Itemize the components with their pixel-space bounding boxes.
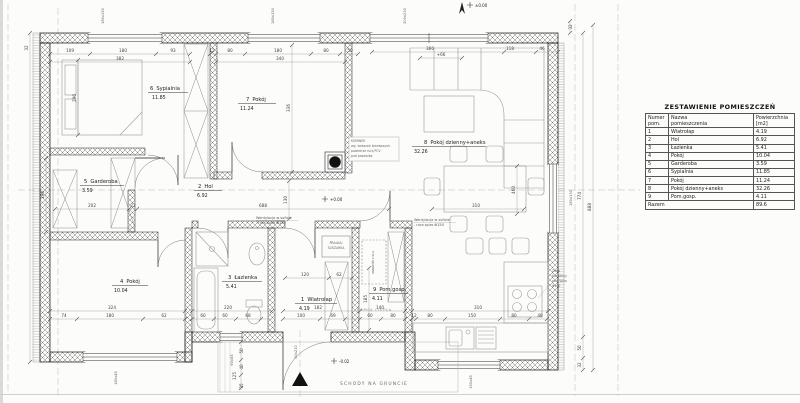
svg-text:- rura spiro Φ150: - rura spiro Φ150 xyxy=(414,223,444,227)
dim-label: 60 xyxy=(367,313,373,318)
shower xyxy=(196,232,228,266)
table-row: 7Pokój11.24 xyxy=(646,177,795,185)
entrance-door xyxy=(283,342,331,390)
col-header-name: Nazwapomieszczenia xyxy=(669,114,754,128)
dim-label: 290 xyxy=(72,94,77,102)
window-size-label: 300x230 xyxy=(403,7,407,24)
dim-label: 125 xyxy=(232,372,237,380)
svg-text:4.11: 4.11 xyxy=(372,296,383,302)
dim-label: 336 xyxy=(286,104,291,112)
dim-label: 310 xyxy=(474,305,482,310)
table-row: 1Wiatrołap4.19 xyxy=(646,128,795,136)
dim-label: 220 xyxy=(224,305,232,310)
col-header-number: Numerpom. xyxy=(646,114,669,128)
window xyxy=(370,33,488,43)
window xyxy=(220,332,242,342)
svg-text:wg. wskazań branżowych: wg. wskazań branżowych xyxy=(351,144,390,148)
table-row: 4Pokój10.04 xyxy=(646,152,795,160)
dim-label: 74 xyxy=(61,313,67,318)
exterior-walls xyxy=(40,33,558,370)
level-marker-porch: -0.02 xyxy=(331,358,350,364)
window-size-label: 180x150 xyxy=(101,7,105,24)
dim-label: 12 xyxy=(209,48,215,53)
dim-label: 50 xyxy=(239,348,244,354)
axis-lines xyxy=(8,4,640,398)
ventilation-note: Wentylacja w suficie - rura spiro Φ150 xyxy=(256,216,298,225)
dimension-lines xyxy=(30,21,593,390)
windows xyxy=(83,33,558,370)
dim-label: 35 xyxy=(239,383,244,389)
table-row: 3Łazienka5.41 xyxy=(646,144,795,152)
dim-label: 120 xyxy=(301,272,309,277)
dim-label: 22 xyxy=(130,203,136,208)
svg-text:3.59: 3.59 xyxy=(82,188,93,194)
door xyxy=(135,158,165,188)
col-header-area: Powierzchnia[m2] xyxy=(754,114,795,128)
bathtub xyxy=(194,268,218,332)
insulation-band xyxy=(33,33,564,370)
room-label-hol: 2Hol 6.92 xyxy=(194,184,222,199)
table-row: 6Sypialnia11.85 xyxy=(646,168,795,176)
door-size-label: 90x210 xyxy=(294,345,298,359)
svg-text:pod posadzką: pod posadzką xyxy=(351,154,373,158)
svg-text:4.19: 4.19 xyxy=(299,306,310,312)
svg-text:32.26: 32.26 xyxy=(414,149,428,155)
room-label-pokoj7: 7Pokój 11.24 xyxy=(238,96,276,112)
table-row: 8Pokój dzienny+aneks32.26 xyxy=(646,185,795,193)
window-size-label: 150x45 xyxy=(469,375,473,389)
window xyxy=(548,164,558,233)
level-marker-hol: +0.00 xyxy=(322,196,343,202)
dim-label: 196 xyxy=(40,191,45,199)
table-row: 2Hol6.92 xyxy=(646,136,795,144)
dim-label: 93 xyxy=(170,48,176,53)
entrance-marker xyxy=(292,372,308,386)
dim-label: 48 xyxy=(537,313,543,318)
svg-text:5.41: 5.41 xyxy=(226,284,237,290)
dimension-ticks xyxy=(28,19,595,390)
svg-text:5Garderoba: 5Garderoba xyxy=(84,179,118,185)
dim-label: 100 xyxy=(297,313,305,318)
dim-label: 80 xyxy=(511,313,517,318)
svg-text:- rura spiro Φ150: - rura spiro Φ150 xyxy=(256,221,286,225)
svg-text:±0.00: ±0.00 xyxy=(475,3,488,8)
table-row: 9Pom.gosp.4.11 xyxy=(646,193,795,201)
dim-label: 40 xyxy=(239,364,244,370)
door xyxy=(232,142,262,172)
svg-text:8Pokój dzienny+aneks: 8Pokój dzienny+aneks xyxy=(424,139,486,146)
window xyxy=(83,352,177,362)
dim-label: 185 xyxy=(363,295,368,303)
stairs-label: SCHODY NA GRUNCIE xyxy=(340,381,408,387)
coffee-table xyxy=(424,96,474,132)
svg-text:KOMINEK: KOMINEK xyxy=(351,139,366,143)
svg-text:Wentylacja w suficie: Wentylacja w suficie xyxy=(256,216,292,220)
dim-label: 774 xyxy=(577,192,582,200)
interior-walls xyxy=(50,43,412,362)
dim-label: 32 xyxy=(577,362,582,368)
dimension-labels: 109 180 93 382 12 80 180 80 50 340 360 +… xyxy=(24,24,592,389)
room-label-sypialnia: 6Sypialnia 11.85 xyxy=(148,86,188,101)
dim-label: 80 xyxy=(323,48,329,53)
dim-label: 180 xyxy=(106,313,114,318)
schedule-header-row: Numerpom. Nazwapomieszczenia Powierzchni… xyxy=(646,114,795,128)
window-size-label: 180x45 xyxy=(114,371,118,385)
north-arrow-icon xyxy=(459,2,465,14)
door xyxy=(148,155,178,185)
dim-label: 324 xyxy=(108,305,116,310)
dim-label: 60 xyxy=(222,313,228,318)
door xyxy=(158,240,185,267)
dim-label: 688 xyxy=(259,203,267,208)
svg-text:9Pom.gosp.: 9Pom.gosp. xyxy=(373,287,407,293)
svg-text:3Łazienka: 3Łazienka xyxy=(228,275,257,281)
svg-text:powietrze rurą PCV: powietrze rurą PCV xyxy=(351,149,382,153)
door xyxy=(198,228,228,258)
dim-label: 109 xyxy=(66,48,74,53)
window xyxy=(248,33,320,43)
level-marker-top: ±0.00 xyxy=(467,2,488,8)
dim-label: 180 xyxy=(274,48,282,53)
dim-label: 50 xyxy=(347,48,353,53)
dim-label: 382 xyxy=(116,56,124,61)
washer-label: PRALKA/ xyxy=(330,241,344,245)
dim-label: 50 xyxy=(577,345,582,351)
dim-label: +66 xyxy=(437,52,446,57)
svg-text:11.85: 11.85 xyxy=(152,95,166,101)
door xyxy=(360,191,390,221)
svg-text:rura spiro: rura spiro xyxy=(552,279,567,283)
corner-sofa xyxy=(410,48,544,188)
fireplace xyxy=(325,152,345,172)
svg-text:Wentylacja w suficie: Wentylacja w suficie xyxy=(414,218,450,222)
dim-label: 80 xyxy=(390,313,396,318)
svg-text:Φ150: Φ150 xyxy=(552,284,560,288)
table-total-row: Razem89.6 xyxy=(646,201,795,209)
dim-label: 62 xyxy=(336,272,342,277)
washbasin xyxy=(249,243,265,265)
svg-text:2Hol: 2Hol xyxy=(198,184,213,190)
dim-label: 888 xyxy=(587,203,592,211)
scanned-floor-plan-page: 109 180 93 382 12 80 180 80 50 340 360 +… xyxy=(0,0,800,403)
svg-text:-0.02: -0.02 xyxy=(339,359,350,364)
dim-label: 80 xyxy=(227,48,233,53)
drainer xyxy=(476,327,496,349)
dim-label: 46 xyxy=(539,46,545,51)
dim-label: 68 xyxy=(245,313,251,318)
window-size-label: 60x45 xyxy=(230,354,234,365)
table-row: 5Garderoba3.59 xyxy=(646,160,795,168)
door xyxy=(285,228,315,258)
dim-label: 12 xyxy=(411,313,417,318)
room-label-garderoba: 5Garderoba 3.59 xyxy=(80,179,124,194)
svg-text:kuchenny: kuchenny xyxy=(552,274,567,278)
svg-text:4Pokój: 4Pokój xyxy=(120,278,140,285)
svg-text:6.92: 6.92 xyxy=(197,193,208,199)
dim-label: 80 xyxy=(427,313,433,318)
bar-stools xyxy=(466,238,529,254)
dim-label: 340 xyxy=(276,56,284,61)
dim-label: 182 xyxy=(314,305,322,310)
window-size-label: 180x130 xyxy=(569,189,573,206)
sink xyxy=(446,327,474,349)
window xyxy=(438,360,500,370)
dim-label: 32 xyxy=(568,24,573,30)
svg-text:+0.00: +0.00 xyxy=(330,197,343,202)
window-size-label: 180x150 xyxy=(271,7,275,24)
dim-label: 60 xyxy=(200,313,206,318)
washer-label: SUSZARKA xyxy=(328,246,346,250)
svg-text:10.04: 10.04 xyxy=(114,288,128,294)
dim-label: 202 xyxy=(88,203,96,208)
room-label-pokoj4: 4Pokój 10.04 xyxy=(112,278,148,294)
svg-text:11.24: 11.24 xyxy=(240,106,254,112)
room-schedule-table: Numerpom. Nazwapomieszczenia Powierzchni… xyxy=(645,113,795,210)
dim-label: 150 xyxy=(468,313,476,318)
dim-label: 32 xyxy=(24,45,29,51)
room-label-pokoj-dzienny: 8Pokój dzienny+aneks 32.26 xyxy=(412,139,486,155)
heat-pump-label: POMPA CIEPŁA xyxy=(357,307,392,312)
schedule-title: ZESTAWIENIE POMIESZCZEŃ xyxy=(645,103,795,111)
svg-text:Okap: Okap xyxy=(552,269,560,273)
dim-label: 360 xyxy=(426,46,434,51)
water-heater-label: zasobnik c.w.u. xyxy=(371,250,375,273)
dim-label: 118 xyxy=(506,46,514,51)
dim-label: 62 xyxy=(161,313,167,318)
window xyxy=(88,33,162,43)
room-schedule: ZESTAWIENIE POMIESZCZEŃ Numerpom. Nazwap… xyxy=(645,103,795,210)
svg-text:6Sypialnia: 6Sypialnia xyxy=(150,86,180,92)
room-label-lazienka: 3Łazienka 5.41 xyxy=(222,275,262,290)
dim-label: 180 xyxy=(119,48,127,53)
svg-text:1Wiatrołap: 1Wiatrołap xyxy=(301,297,333,303)
dim-label: 130 xyxy=(283,196,288,204)
svg-text:7Pokój: 7Pokój xyxy=(246,96,266,103)
dim-label: 310 xyxy=(472,203,480,208)
dim-label: 69 xyxy=(330,313,336,318)
dim-label: 460 xyxy=(511,186,516,194)
